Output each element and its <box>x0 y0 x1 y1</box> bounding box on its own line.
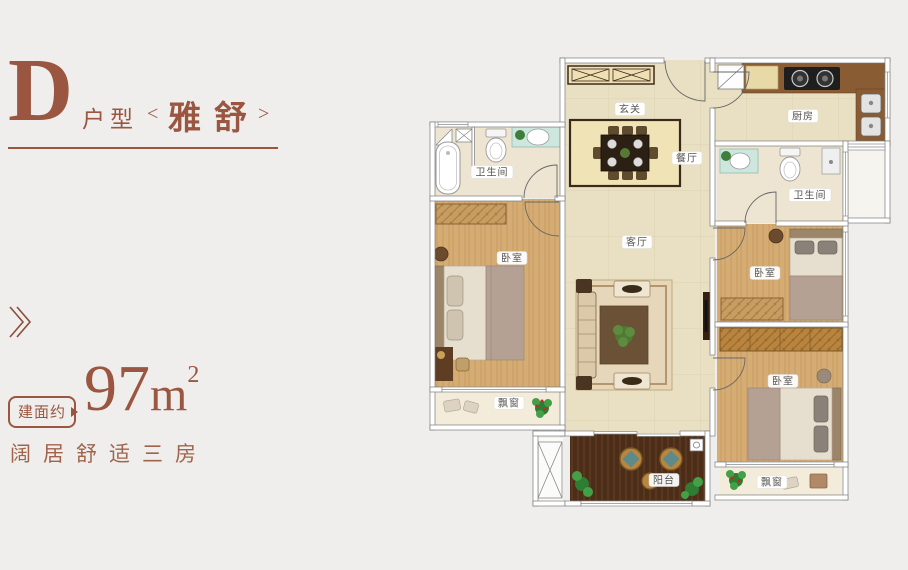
cutting-board <box>746 66 778 89</box>
room-label-bay-window-2: 飘窗 <box>757 476 787 489</box>
bed-headboard <box>832 388 841 460</box>
sofa <box>578 292 596 378</box>
pillow <box>447 276 463 306</box>
drain-box <box>690 439 703 451</box>
page: D 户型 < 雅舒 > 建面约 97m2 阔居舒适三房 <box>0 0 908 570</box>
left-angle-bracket: < <box>147 103 158 126</box>
bed-blanket <box>486 266 524 360</box>
double-right-chevron-icon <box>8 304 33 340</box>
title-underline <box>8 147 278 149</box>
toilet-icon <box>486 138 506 162</box>
right-angle-bracket: > <box>258 103 269 126</box>
area-unit: m <box>150 368 187 421</box>
area-superscript: 2 <box>187 362 199 388</box>
pillow <box>814 396 828 422</box>
cushion <box>443 399 461 413</box>
floorplan-diagram: 玄关 餐厅 厨房 卫生间 卫生间 客厅 <box>424 52 894 524</box>
tagline: 阔居舒适三房 <box>10 438 208 468</box>
side-table <box>576 376 592 390</box>
svg-text:卫生间: 卫生间 <box>794 189 827 202</box>
svg-text:卧室: 卧室 <box>501 252 523 265</box>
bed-headboard <box>435 266 444 360</box>
room-label-entry: 玄关 <box>615 103 645 116</box>
svg-text:玄关: 玄关 <box>619 103 641 116</box>
stool <box>817 369 831 383</box>
pillow <box>795 241 814 254</box>
plant-icon <box>515 130 525 140</box>
plan-type-letter: D <box>8 46 73 136</box>
room-label-kitchen: 厨房 <box>788 110 818 123</box>
svg-text:卧室: 卧室 <box>772 375 794 388</box>
area-badge: 建面约 <box>8 396 76 428</box>
svg-text:厨房: 厨房 <box>792 110 814 123</box>
room-label-bedroom-2: 卧室 <box>750 267 780 280</box>
plan-name: 雅舒 <box>168 91 260 139</box>
plan-type-word: 户型 <box>82 100 138 134</box>
room-label-bedroom-1: 卧室 <box>497 252 527 265</box>
entry-closet <box>568 66 654 84</box>
svg-text:客厅: 客厅 <box>626 236 648 249</box>
area-value: 97m2 <box>84 356 199 422</box>
room-label-bay-window-1: 飘窗 <box>494 397 524 410</box>
nightstand <box>769 229 783 243</box>
pillow <box>447 310 463 340</box>
svg-text:卫生间: 卫生间 <box>476 166 509 179</box>
dining-table-set <box>570 120 680 186</box>
sliding-door <box>594 432 637 434</box>
chair <box>456 358 469 371</box>
svg-text:卧室: 卧室 <box>754 267 776 280</box>
washbasin-icon <box>527 129 549 145</box>
floor-utility-strip <box>848 144 887 220</box>
wardrobe <box>720 328 842 351</box>
bed-blanket <box>748 388 780 460</box>
cushion <box>810 474 827 488</box>
wardrobe <box>721 298 783 320</box>
svg-text:餐厅: 餐厅 <box>676 152 698 165</box>
bed-blanket <box>790 276 842 320</box>
left-panel: D 户型 < 雅舒 > 建面约 97m2 阔居舒适三房 <box>0 0 420 570</box>
desk <box>435 347 453 381</box>
room-label-dining: 餐厅 <box>672 152 702 165</box>
stair-shaft <box>538 442 562 498</box>
nightstand <box>434 247 448 261</box>
wardrobe <box>436 204 506 224</box>
side-table <box>576 279 592 293</box>
svg-text:飘窗: 飘窗 <box>498 397 520 410</box>
pillow <box>814 426 828 452</box>
tv-icon <box>705 300 708 332</box>
svg-text:飘窗: 飘窗 <box>761 476 783 489</box>
sliding-door <box>637 434 680 436</box>
toilet-icon <box>780 157 800 181</box>
svg-text:阳台: 阳台 <box>653 474 675 487</box>
room-label-living: 客厅 <box>622 236 652 249</box>
plant-icon <box>721 151 731 161</box>
room-label-bathroom-1: 卫生间 <box>471 166 513 179</box>
area-number: 97 <box>84 352 150 425</box>
room-label-balcony: 阳台 <box>649 474 679 487</box>
room-label-bathroom-2: 卫生间 <box>789 189 831 202</box>
room-label-bedroom-3: 卧室 <box>768 375 798 388</box>
washbasin-icon <box>730 153 750 169</box>
pillow <box>818 241 837 254</box>
bed-headboard <box>790 229 842 238</box>
